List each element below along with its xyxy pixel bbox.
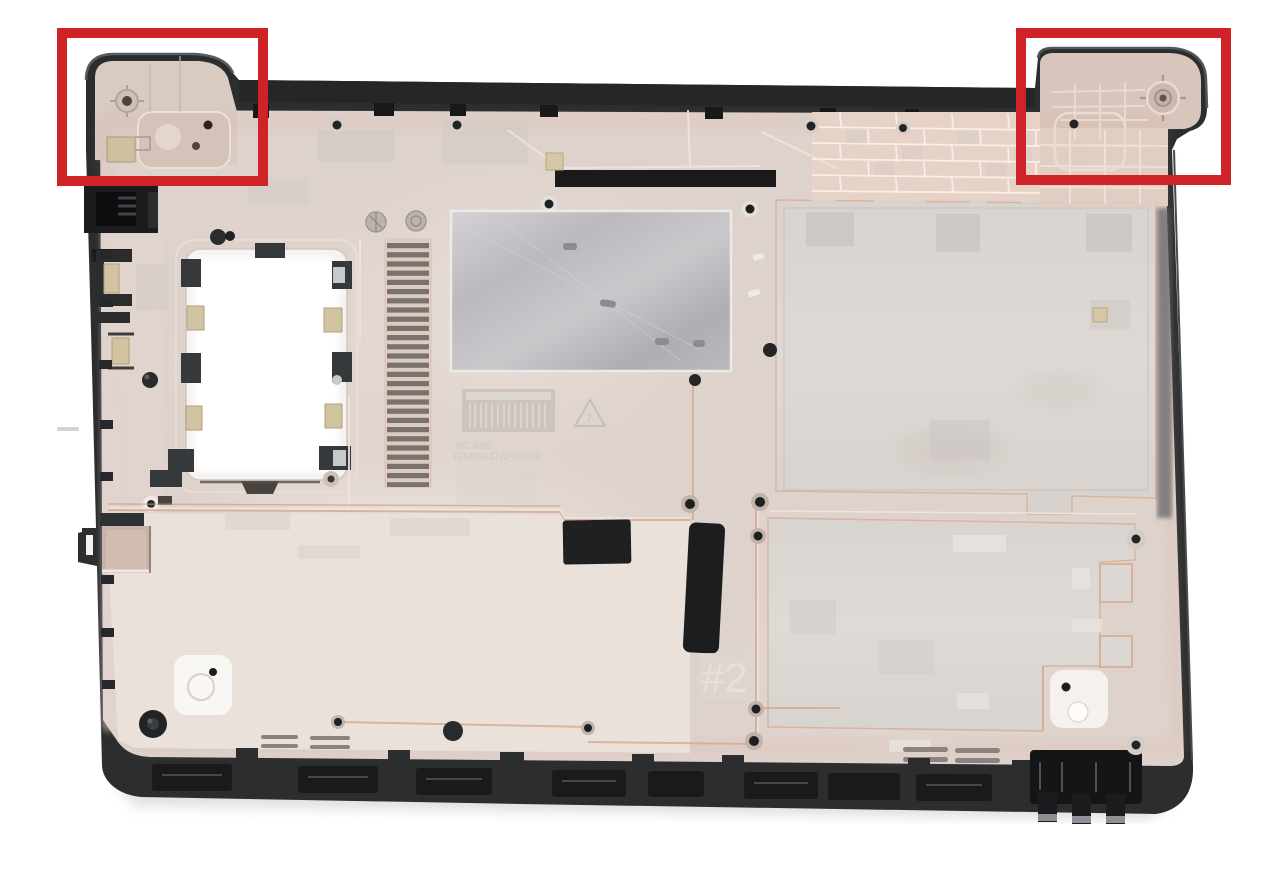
- svg-text:PC ABS: PC ABS: [456, 441, 492, 452]
- svg-text:#2: #2: [701, 654, 748, 701]
- svg-text:13NB0647AP0301Z: 13NB0647AP0301Z: [452, 452, 541, 463]
- svg-text:7: 7: [586, 413, 592, 425]
